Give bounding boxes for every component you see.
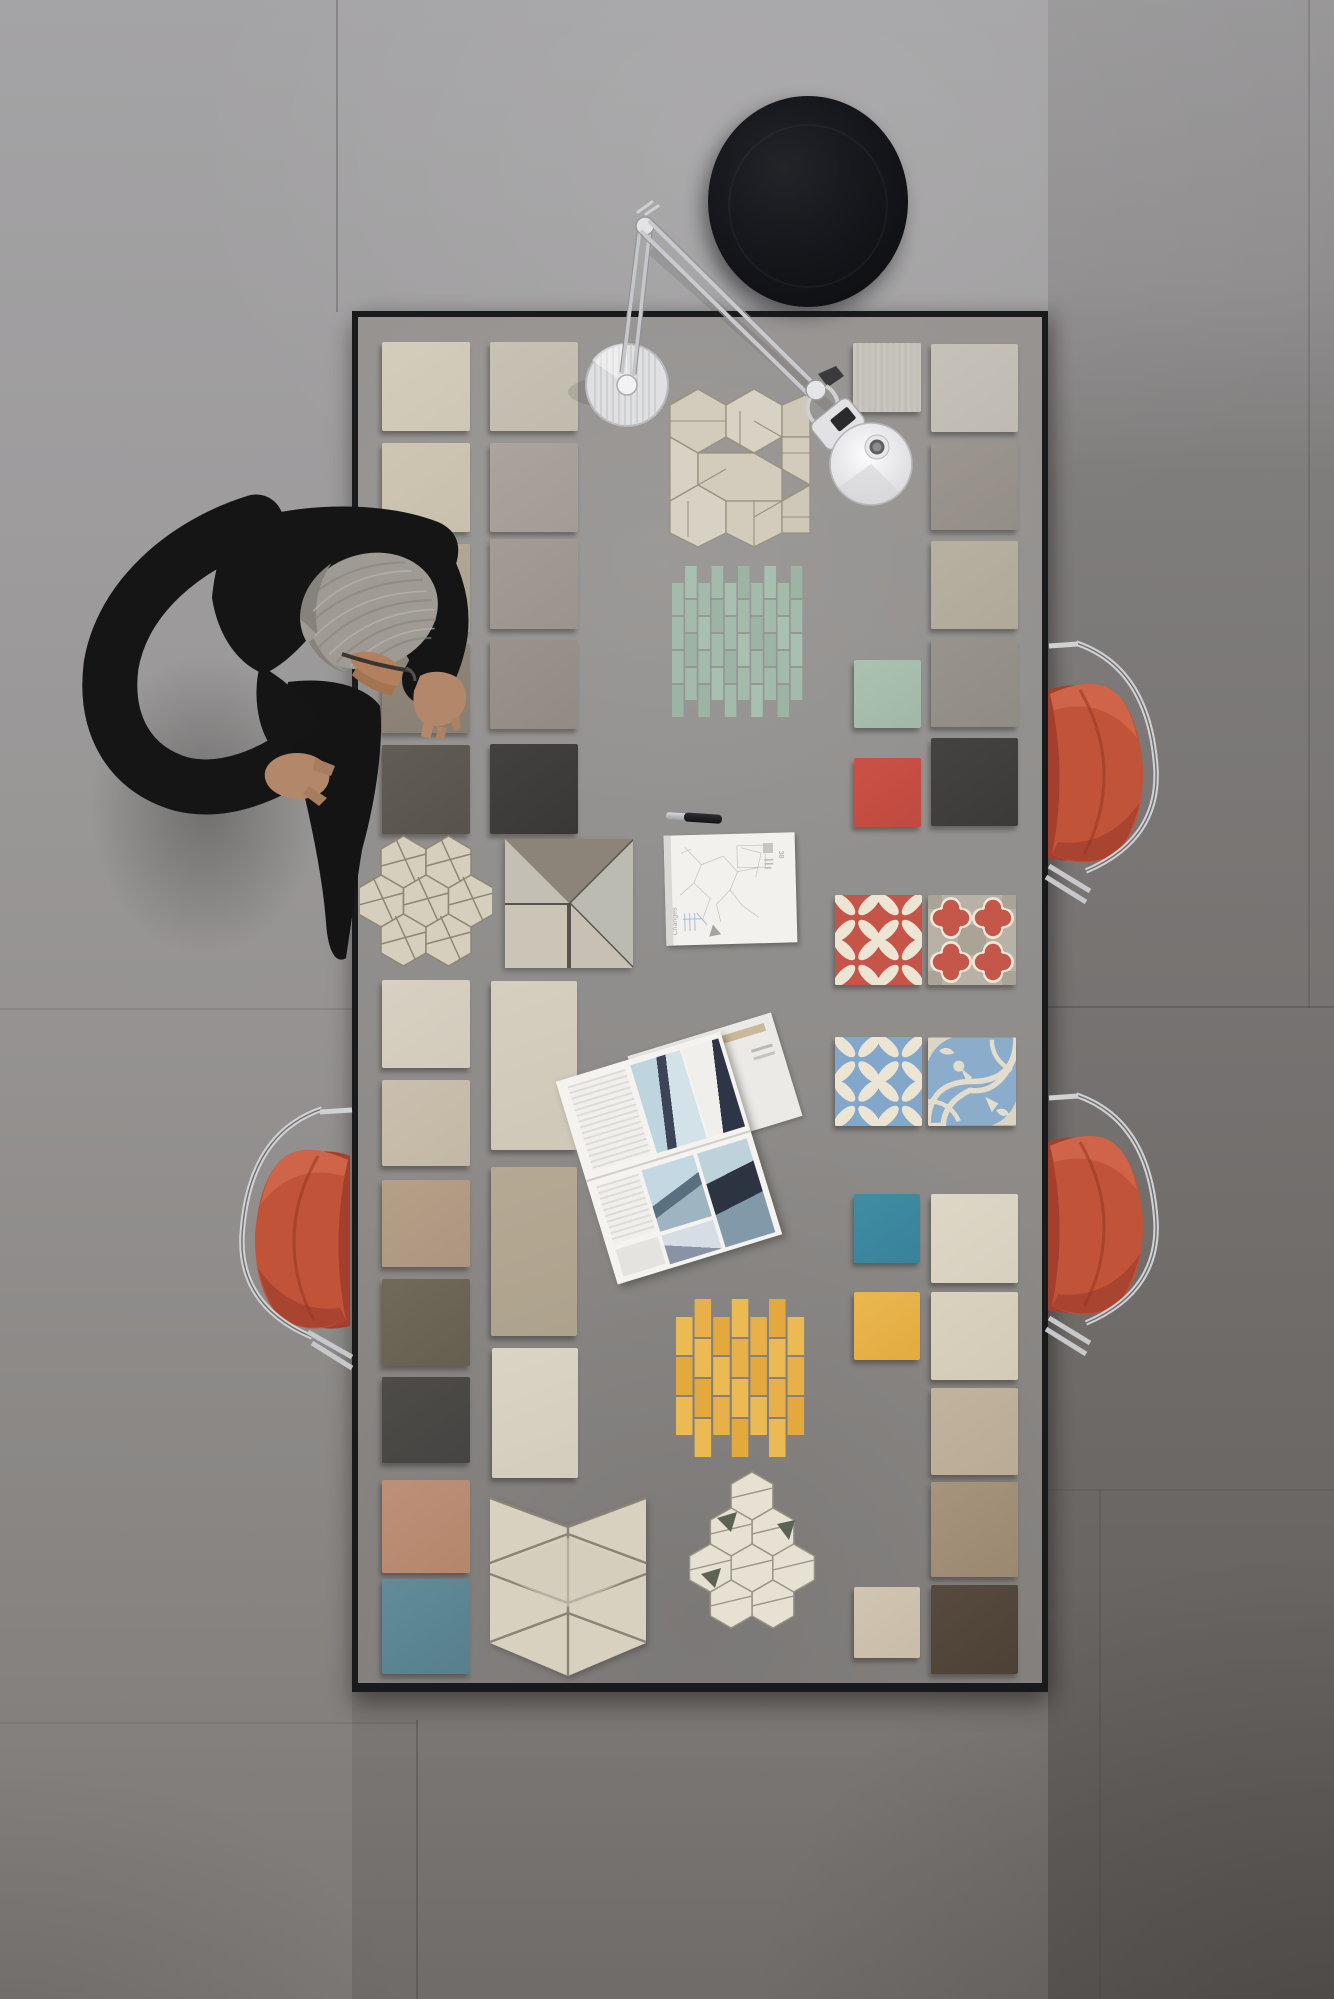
- svg-text:38: 38: [777, 851, 784, 859]
- svg-text:Changes: Changes: [671, 907, 679, 936]
